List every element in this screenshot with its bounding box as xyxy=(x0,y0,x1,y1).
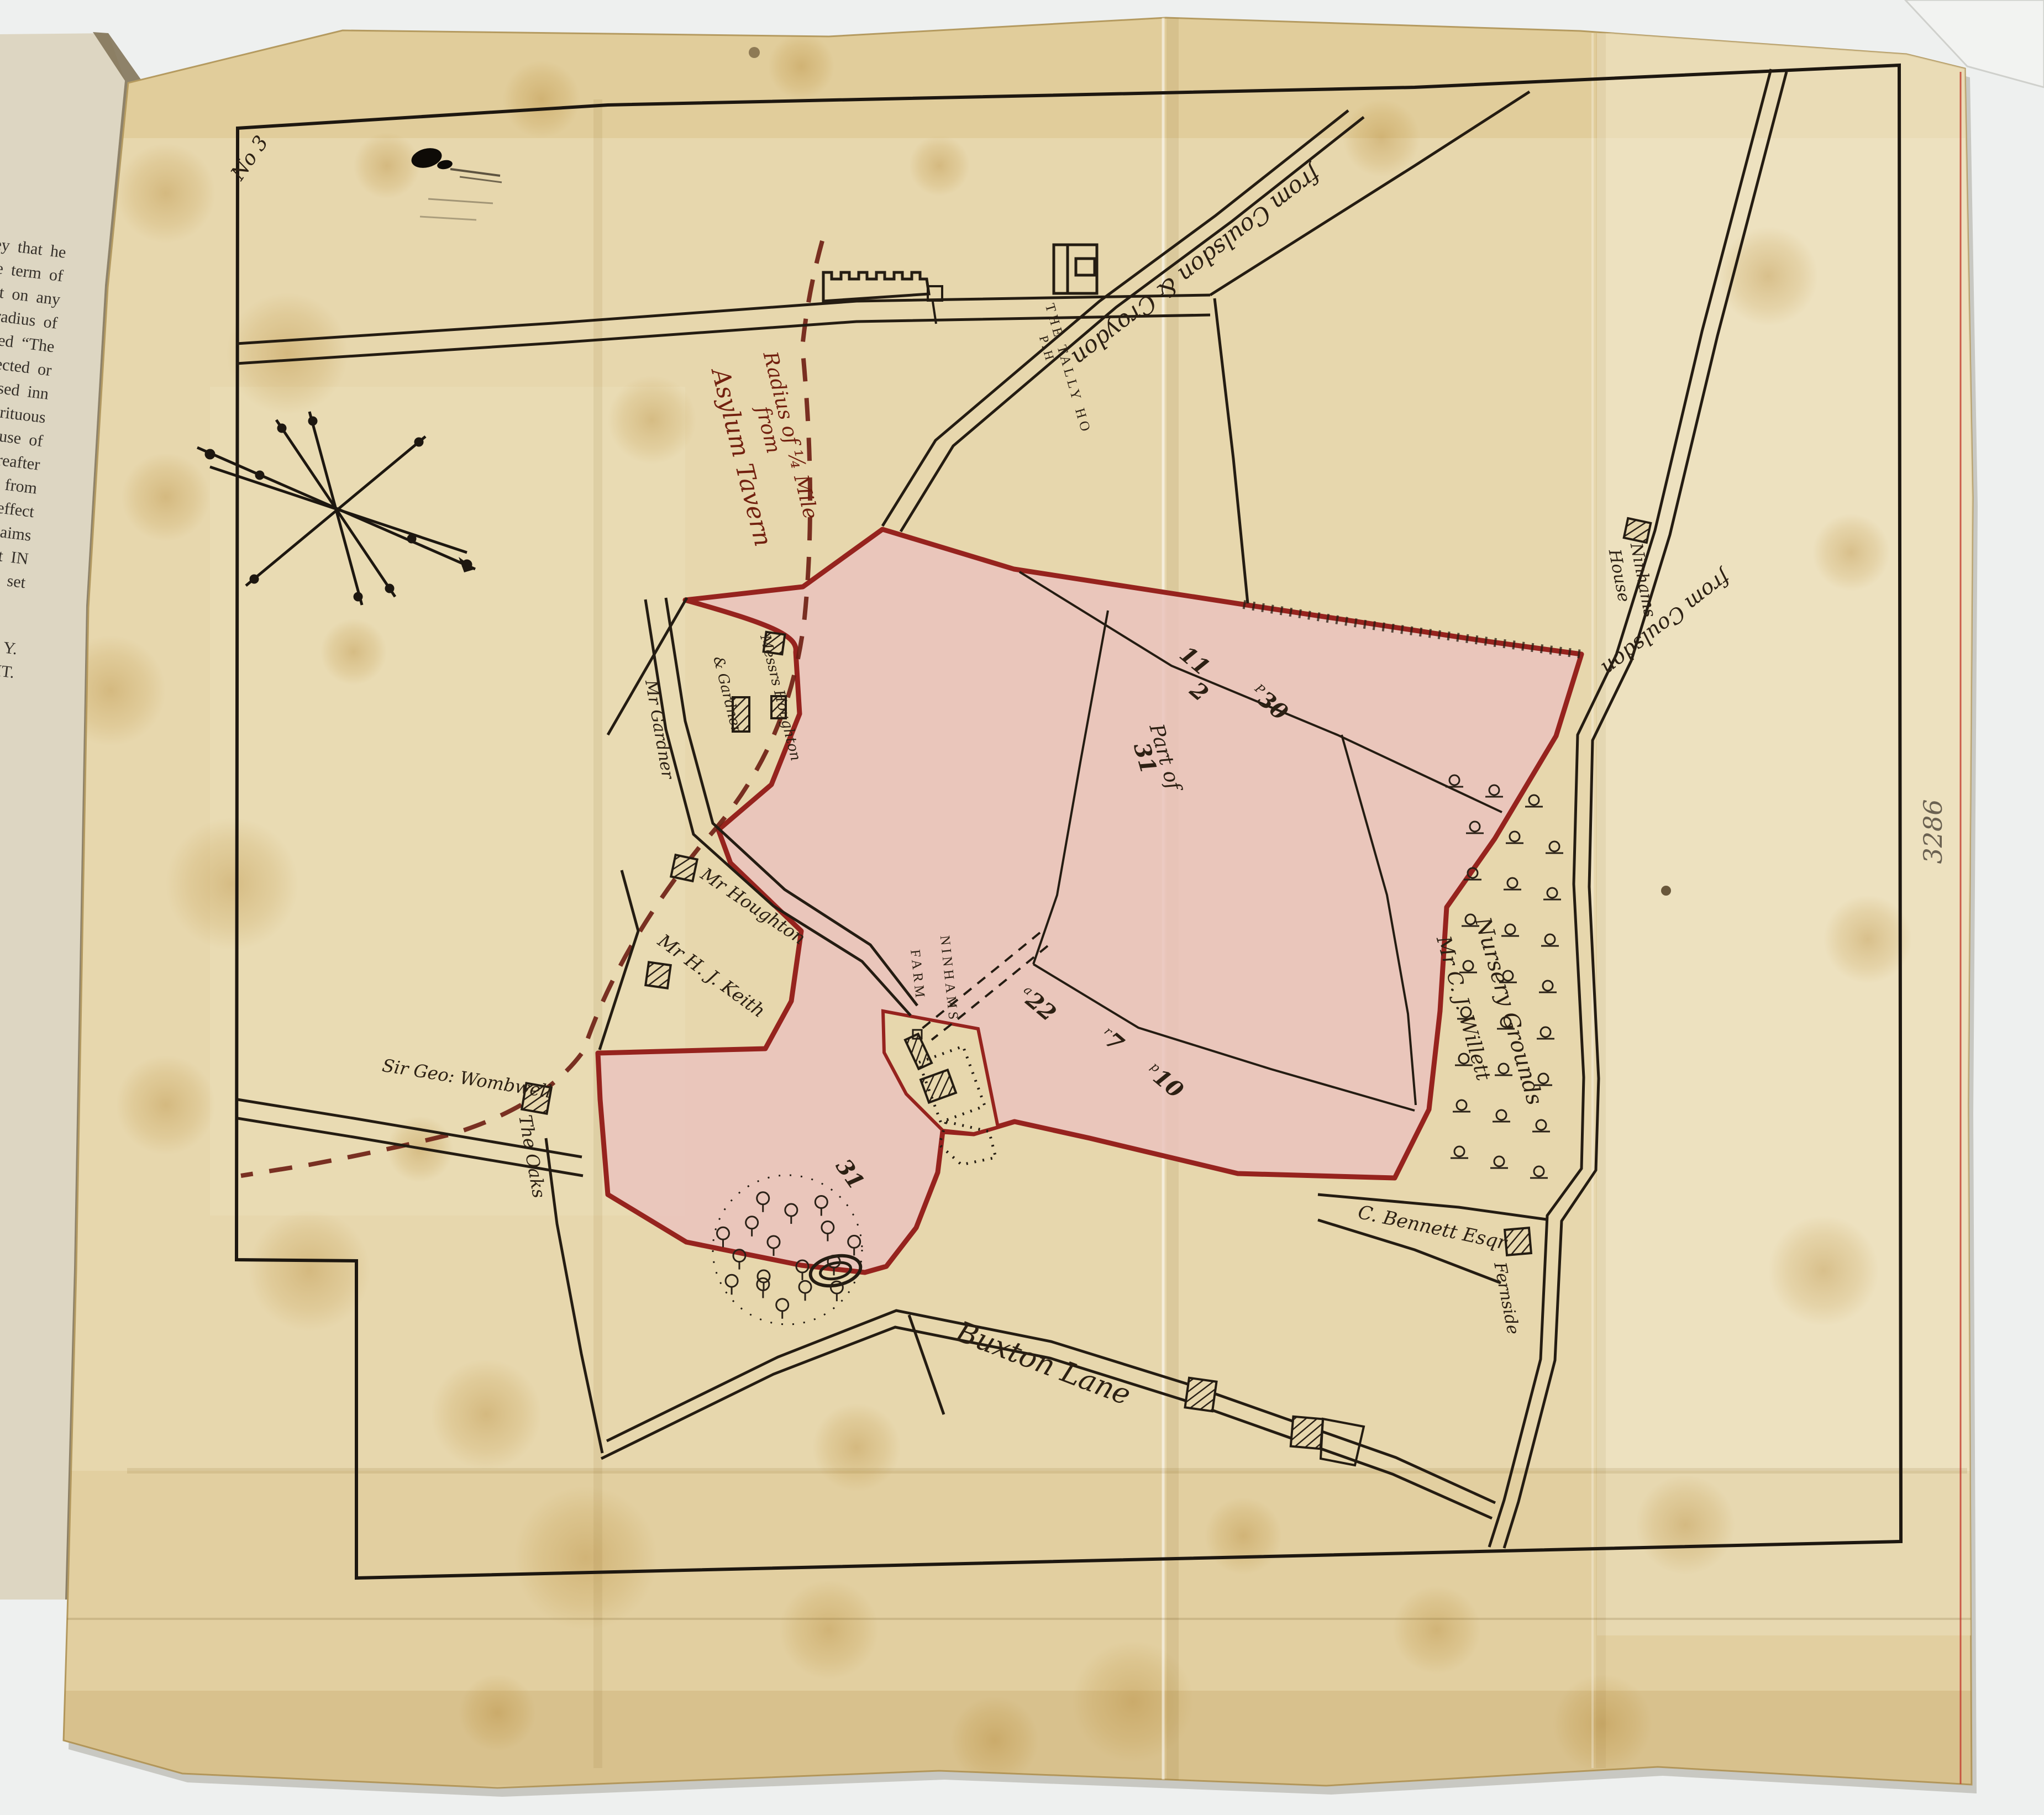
mr-keith-label: Mr H. J. Keith xyxy=(654,930,770,1022)
parcel-number-2: 2 xyxy=(1185,677,1213,707)
buxton-lane-label: Buxton Lane xyxy=(952,1315,1135,1412)
radius-note-line3: Asylum Tavern xyxy=(706,366,777,549)
label-layer: sley that he the term of erect on any ra… xyxy=(0,0,2044,1815)
book-page-text: sley that he the term of erect on any ra… xyxy=(0,219,67,685)
the-oaks-label: The Oaks xyxy=(514,1113,550,1200)
mr-gardner-label: Mr Gardner xyxy=(641,678,677,781)
parcel-number-10: p10 xyxy=(1141,1058,1188,1103)
sheet-number: 3286 xyxy=(1918,799,1948,864)
parcel-number-31-lower: 31 xyxy=(831,1154,869,1195)
photographed-map-page: sley that he the term of erect on any ra… xyxy=(0,0,2044,1815)
mr-houghton-label: Mr Houghton xyxy=(697,864,810,949)
messrs-houghton-label: Messrs Houghton xyxy=(756,633,804,762)
and-gardner-label: & Gardner xyxy=(710,655,744,734)
ninhams-farm-label-2: FARM xyxy=(907,949,928,1001)
ninhams-farm-label-1: NINHAMS xyxy=(937,935,961,1024)
parcel-number-22: a22 xyxy=(1015,981,1061,1027)
book-line: Y. xyxy=(0,615,19,661)
ninhams-house-label-1: Ninhams xyxy=(1626,541,1659,619)
fernside-label: Fernside xyxy=(1490,1261,1523,1337)
road-label-coulsdon-croydon: from Coulsdon & Croydon xyxy=(1066,161,1326,372)
parcel-number-7: r7 xyxy=(1095,1023,1128,1057)
corner-mark: No 3 xyxy=(227,131,273,184)
parcel-number-30: P30 xyxy=(1246,680,1293,726)
wombwell-label: Sir Geo: Wombwell xyxy=(381,1055,553,1102)
parcel-number-11: 11 xyxy=(1175,641,1215,681)
bennett-label: C. Bennett Esqr xyxy=(1356,1201,1509,1254)
